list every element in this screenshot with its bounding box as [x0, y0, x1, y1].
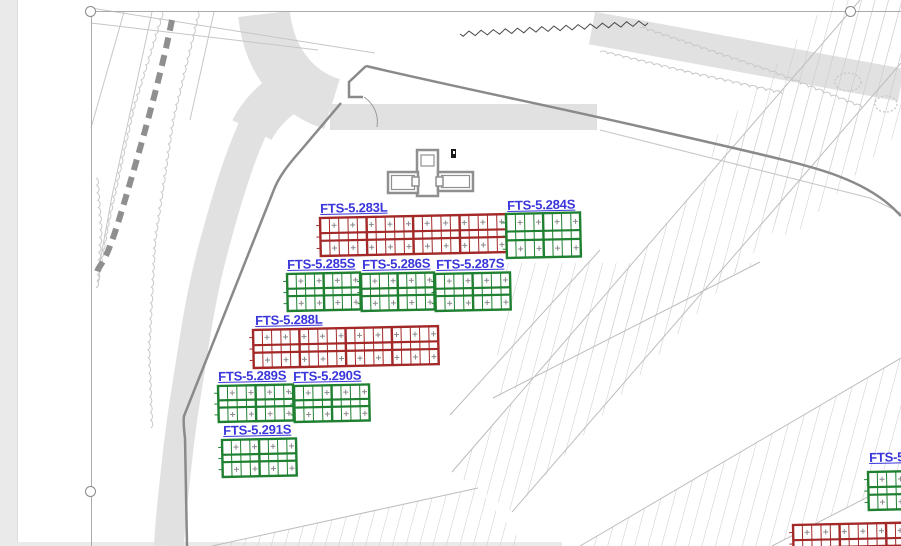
block-label: FTS-5.290S [293, 369, 361, 383]
gate-notch [338, 55, 385, 98]
building-symbol-mark [451, 149, 456, 158]
selection-handle[interactable] [845, 6, 856, 17]
document-canvas: { "page": { "margin_color": "#eaeaea", "… [0, 0, 901, 546]
block-label: FTS-5.288L [255, 313, 323, 327]
panel-block-FTS-5.283L [316, 214, 507, 256]
selection-handle[interactable] [85, 486, 96, 497]
selection-border-left [91, 11, 92, 546]
panel-block-FTS-5 [864, 470, 901, 510]
panel-block-unlabeled [789, 521, 901, 546]
selection-border-top [91, 11, 901, 12]
block-label: FTS-5.287S [436, 257, 504, 271]
panel-block-FTS-5.290S [290, 384, 370, 422]
panel-block-FTS-5.285S [283, 272, 361, 311]
block-label: FTS-5.286S [362, 257, 430, 271]
site-plan-svg [0, 0, 901, 546]
panel-block-FTS-5.287S [431, 272, 511, 311]
panel-block-FTS-5.284S [502, 212, 581, 258]
panel-block-FTS-5.289S [214, 384, 294, 422]
block-label: FTS-5.285S [287, 257, 355, 271]
selected-site-plan-image[interactable]: FTS-5.283LFTS-5.284SFTS-5.285SFTS-5.286S… [0, 0, 901, 546]
selection-handle[interactable] [85, 6, 96, 17]
panel-block-FTS-5.288L [249, 326, 439, 368]
dashed-centerline [97, 20, 172, 272]
panel-block-FTS-5.291S [218, 438, 297, 477]
block-label: FTS-5.283L [320, 201, 388, 215]
block-label: FTS-5.291S [223, 423, 291, 437]
panel-block-FTS-5.286S [357, 272, 435, 311]
wavy-line [96, 12, 163, 288]
block-label: FTS-5.289S [218, 369, 286, 383]
building-footprint [388, 150, 473, 196]
block-label: FTS-5 [869, 450, 901, 464]
block-label: FTS-5.284S [507, 198, 575, 212]
